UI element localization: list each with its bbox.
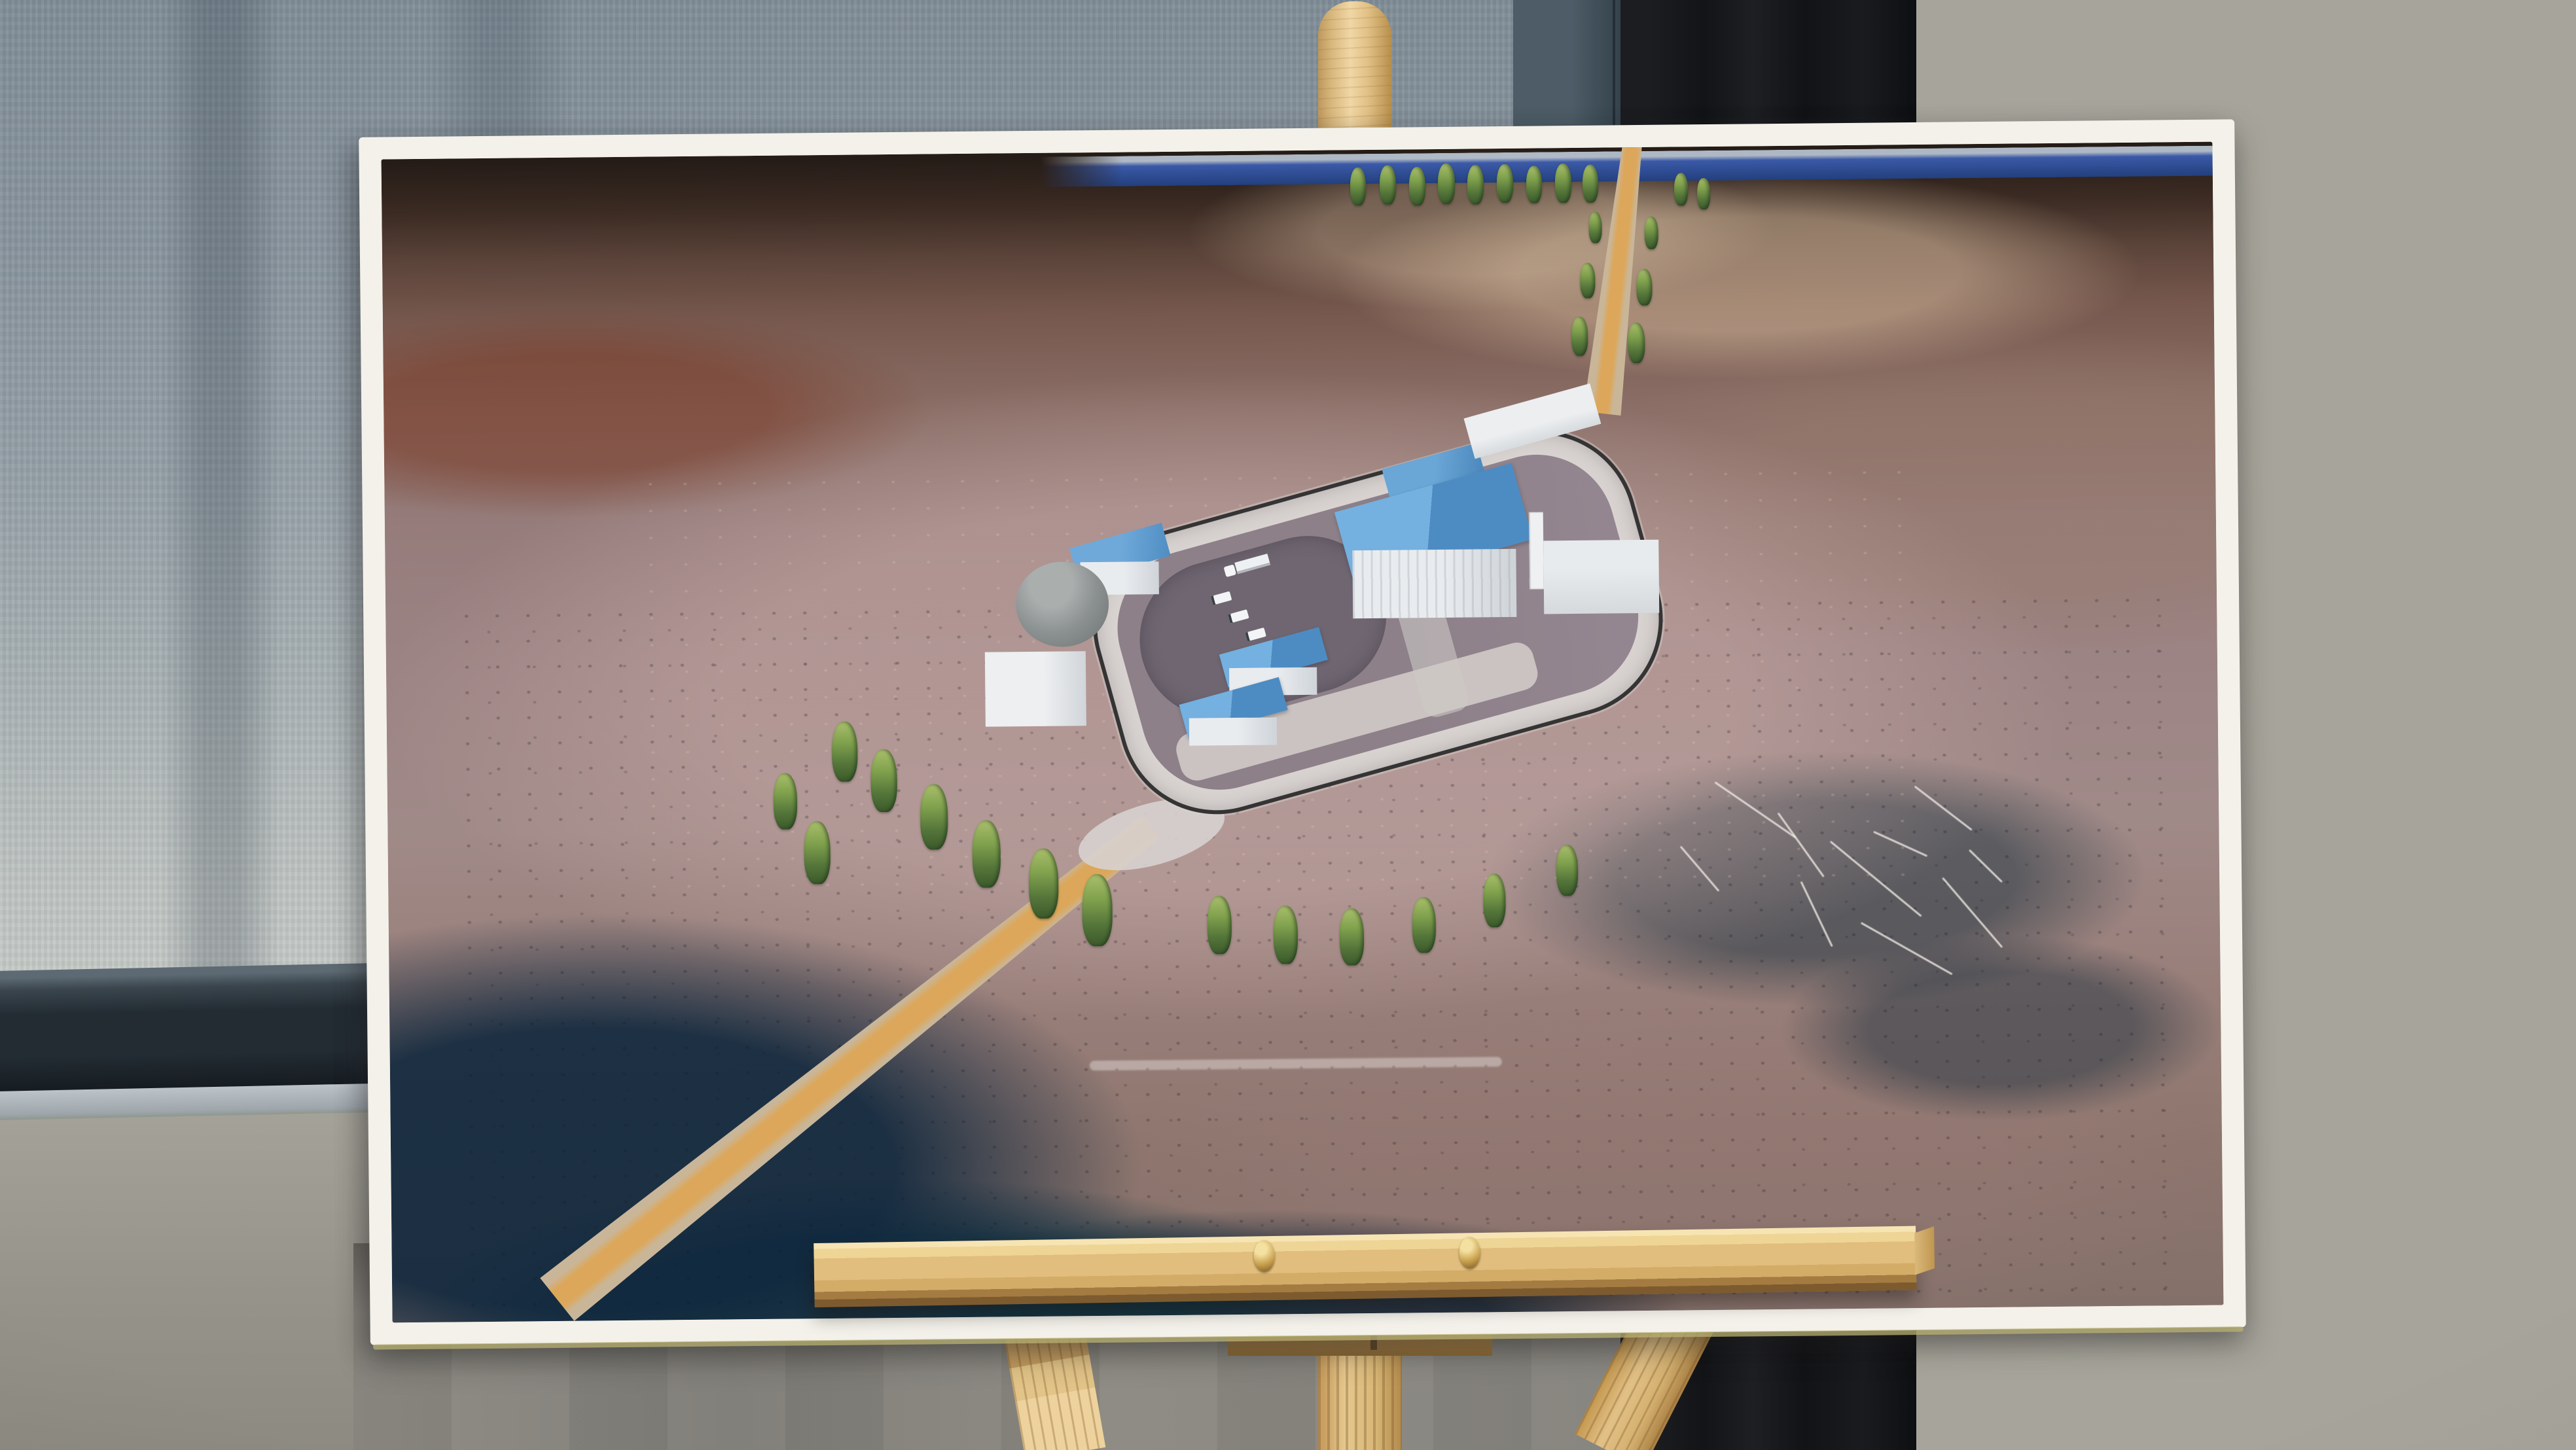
tree-icon — [1497, 164, 1514, 203]
tree-icon — [1409, 167, 1426, 205]
tree-icon — [1350, 168, 1367, 205]
tree-icon — [1029, 849, 1059, 919]
building-south-shed-2-wall — [1189, 717, 1277, 745]
tree-icon — [1340, 908, 1365, 965]
tree-icon — [1380, 166, 1397, 205]
brass-screw-icon — [1253, 1240, 1275, 1271]
tree-icon — [1467, 165, 1484, 204]
tree-icon — [804, 821, 831, 884]
tree-icon — [1274, 906, 1298, 964]
tree-icon — [1636, 269, 1653, 306]
building-main-stack — [1529, 512, 1544, 589]
storage-tank — [1015, 561, 1109, 647]
building-west-shed — [985, 651, 1086, 726]
tree-icon — [1580, 263, 1596, 298]
tree-icon — [920, 784, 948, 849]
tree-icon — [1207, 896, 1232, 954]
tree-icon — [1697, 178, 1710, 209]
poster-board — [359, 119, 2246, 1345]
tree-icon — [832, 722, 858, 782]
tree-icon — [1588, 212, 1601, 243]
building-main-annex — [1543, 540, 1659, 614]
tree-icon — [774, 773, 798, 829]
tree-icon — [1644, 217, 1658, 249]
tree-icon — [1526, 166, 1543, 203]
tree-icon — [1556, 845, 1579, 896]
aerial-render — [382, 142, 2224, 1323]
tree-icon — [1483, 874, 1506, 927]
tree-icon — [870, 749, 897, 812]
building-main-wall — [1352, 549, 1516, 618]
tree-icon — [1674, 173, 1688, 205]
tree-icon — [1571, 317, 1588, 356]
photo-of-easel-poster — [0, 0, 2576, 1450]
brass-screw-icon — [1459, 1237, 1480, 1268]
tree-icon — [1082, 874, 1113, 946]
tree-icon — [1628, 323, 1645, 363]
tree-icon — [1555, 164, 1572, 203]
tree-icon — [972, 820, 1001, 887]
blind-shadow-band — [162, 0, 280, 1008]
tree-icon — [1438, 164, 1456, 204]
tree-icon — [1583, 165, 1599, 203]
tree-icon — [1412, 897, 1436, 953]
truck-cab — [1223, 564, 1236, 577]
